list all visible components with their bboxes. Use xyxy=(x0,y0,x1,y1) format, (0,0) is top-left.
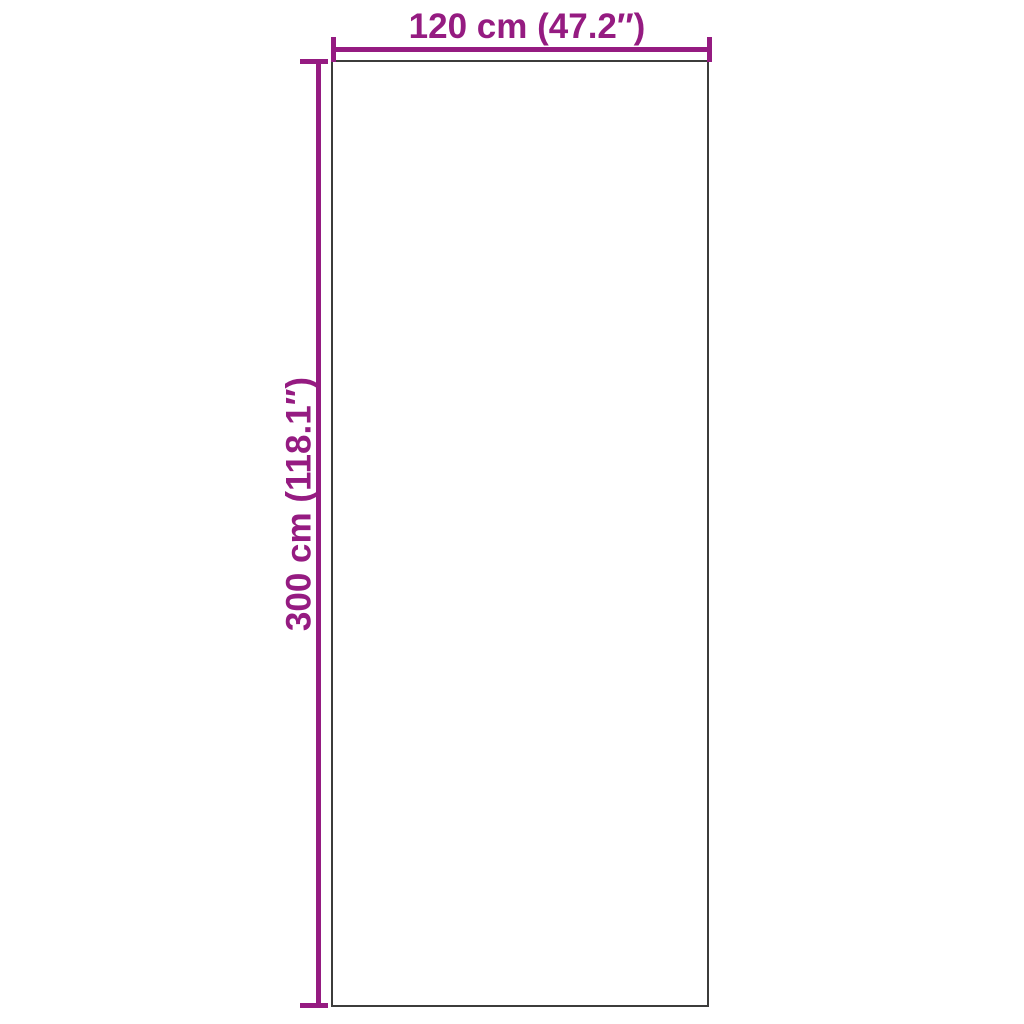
height-dimension-tick-bottom xyxy=(300,1003,328,1008)
height-dimension-tick-top xyxy=(300,59,328,64)
dimension-diagram: 120 cm (47.2″) 300 cm (118.1″) xyxy=(0,0,1024,1024)
width-dimension-line xyxy=(331,47,712,52)
product-outline xyxy=(331,60,709,1007)
width-dimension-label: 120 cm (47.2″) xyxy=(409,9,646,44)
height-dimension-label: 300 cm (118.1″) xyxy=(282,377,317,631)
width-dimension-tick-left xyxy=(331,37,336,62)
width-dimension-tick-right xyxy=(707,37,712,62)
